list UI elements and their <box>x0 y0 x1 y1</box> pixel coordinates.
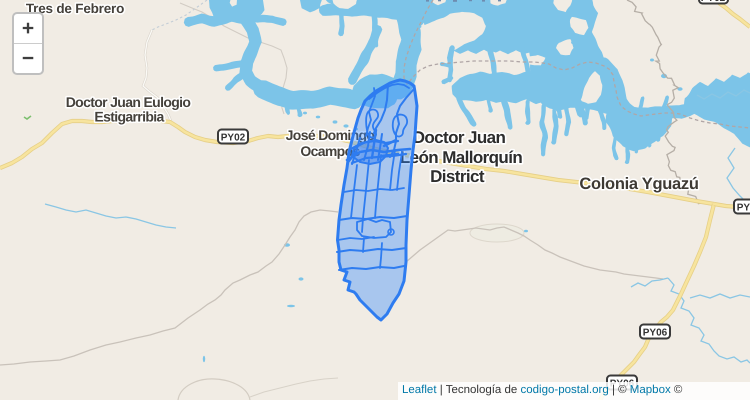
svg-text:PY02: PY02 <box>221 133 246 144</box>
svg-text:PY06: PY06 <box>643 328 668 339</box>
svg-text:PY02: PY02 <box>737 203 750 214</box>
svg-text:PY02: PY02 <box>701 0 726 4</box>
